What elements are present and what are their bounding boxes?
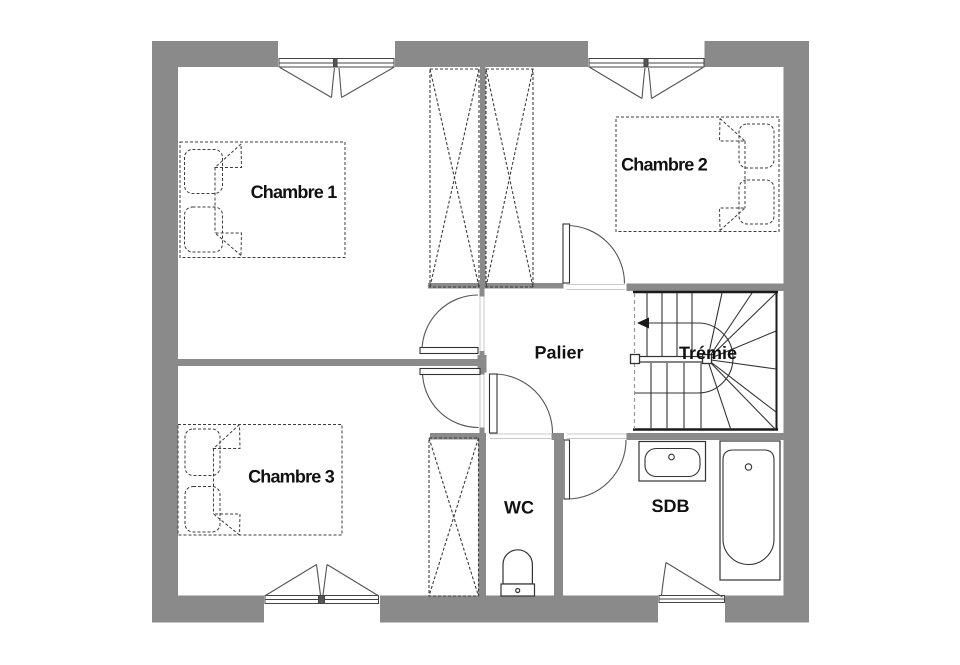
svg-text:Trémie: Trémie: [679, 343, 737, 363]
svg-text:WC: WC: [504, 498, 534, 518]
svg-text:Chambre 3: Chambre 3: [248, 467, 335, 487]
svg-text:Palier: Palier: [534, 343, 583, 363]
svg-text:SDB: SDB: [651, 496, 689, 516]
svg-text:Chambre 2: Chambre 2: [621, 155, 708, 175]
svg-text:Chambre 1: Chambre 1: [251, 182, 338, 202]
